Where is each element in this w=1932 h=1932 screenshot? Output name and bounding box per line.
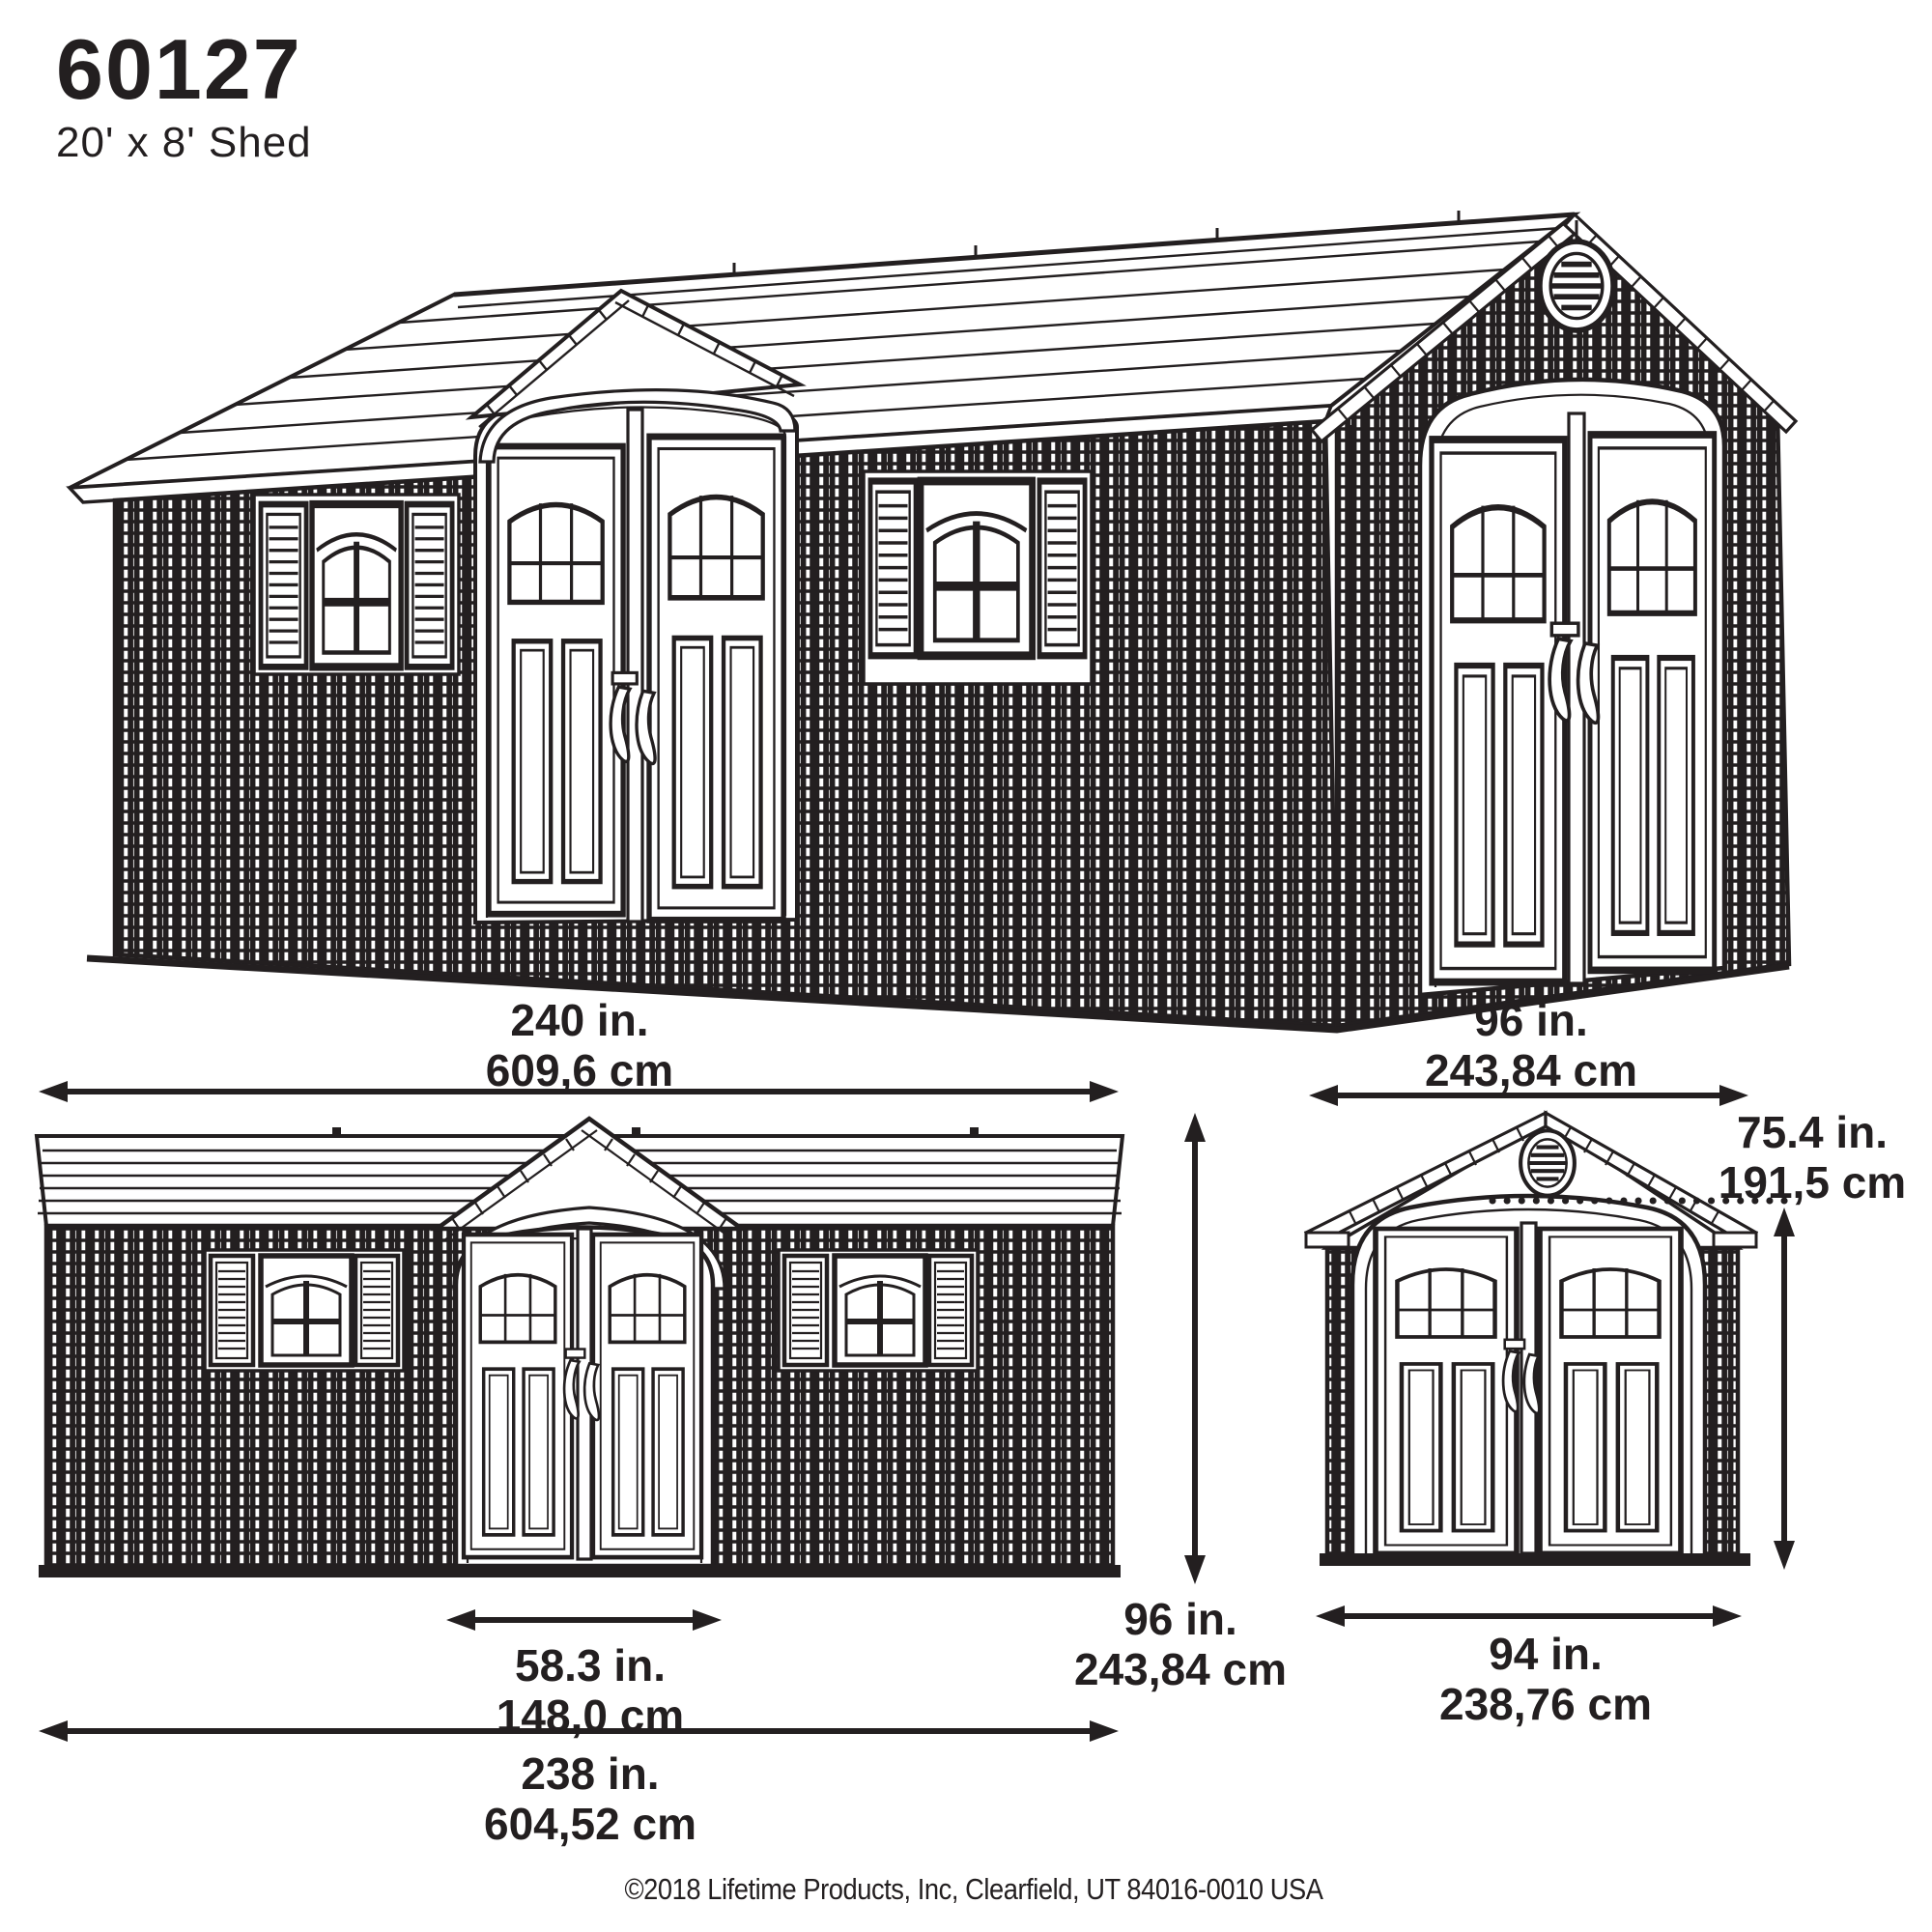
front-window-left xyxy=(254,495,459,674)
label-door-width: 58.3 in. 148,0 cm xyxy=(497,1640,684,1741)
side-base-metric: 238,76 cm xyxy=(1439,1679,1652,1729)
side-base-inches: 94 in. xyxy=(1439,1629,1652,1679)
side-elevation xyxy=(1306,1113,1756,1566)
door-top-height-inches: 75.4 in. xyxy=(1719,1107,1906,1157)
front-window-right xyxy=(864,471,1092,684)
elevation-window-right xyxy=(779,1250,978,1371)
door-width-metric: 148,0 cm xyxy=(497,1690,684,1741)
front-width-metric: 609,6 cm xyxy=(486,1045,673,1095)
shed-dimension-diagram: 60127 20' x 8' Shed xyxy=(0,0,1932,1932)
label-door-top-height: 75.4 in. 191,5 cm xyxy=(1719,1107,1906,1207)
label-base-length: 238 in. 604,52 cm xyxy=(484,1748,696,1849)
label-front-width: 240 in. 609,6 cm xyxy=(486,995,673,1095)
perspective-view xyxy=(70,211,1796,1030)
front-width-inches: 240 in. xyxy=(486,995,673,1045)
label-wall-height: 96 in. 243,84 cm xyxy=(1074,1594,1287,1694)
door-width-inches: 58.3 in. xyxy=(497,1640,684,1690)
door-top-height-metric: 191,5 cm xyxy=(1719,1157,1906,1207)
base-length-metric: 604,52 cm xyxy=(484,1799,696,1849)
wall-height-metric: 243,84 cm xyxy=(1074,1644,1287,1694)
wall-height-inches: 96 in. xyxy=(1074,1594,1287,1644)
label-side-base-width: 94 in. 238,76 cm xyxy=(1439,1629,1652,1729)
front-double-doors xyxy=(475,394,797,923)
base-length-inches: 238 in. xyxy=(484,1748,696,1799)
front-elevation xyxy=(37,1119,1122,1577)
side-width-inches: 96 in. xyxy=(1425,995,1637,1045)
elevation-window-left xyxy=(205,1250,404,1371)
copyright-line: ©2018 Lifetime Products, Inc, Clearfield… xyxy=(624,1872,1322,1907)
side-entry xyxy=(1352,1196,1705,1558)
label-side-width: 96 in. 243,84 cm xyxy=(1425,995,1637,1095)
side-width-metric: 243,84 cm xyxy=(1425,1045,1637,1095)
